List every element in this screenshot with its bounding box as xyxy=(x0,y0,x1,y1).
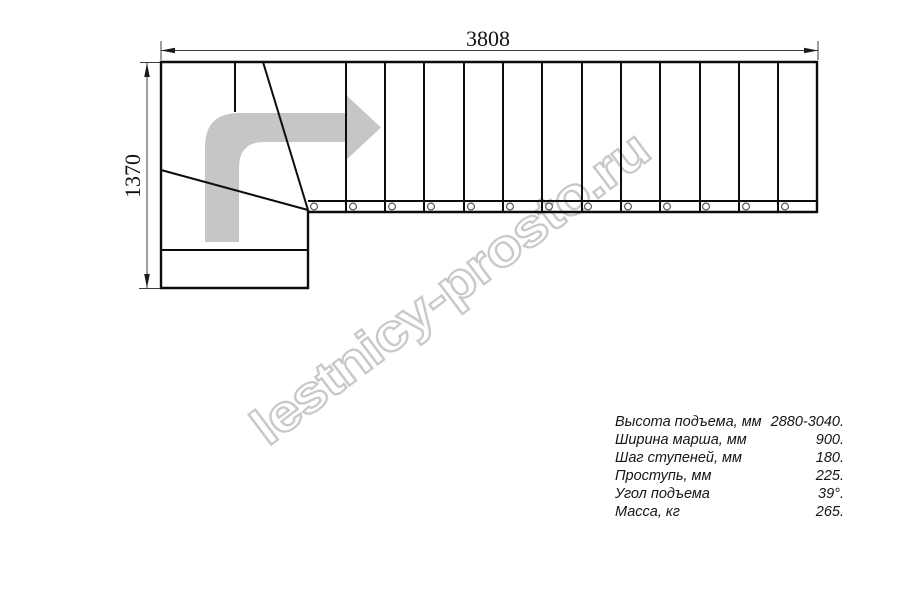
height-dimension-label: 1370 xyxy=(120,154,145,198)
baluster-circle xyxy=(743,203,750,210)
spec-value: 900. xyxy=(816,431,844,449)
spec-label: Масса, кг xyxy=(615,503,680,521)
dimension-height: 1370 xyxy=(120,63,160,289)
spec-value: 265. xyxy=(816,503,844,521)
spec-label: Ширина марша, мм xyxy=(615,431,747,449)
spec-value: 2880-3040. xyxy=(771,413,844,431)
spec-row-width: Ширина марша, мм 900. xyxy=(615,431,844,449)
baluster-circle xyxy=(311,203,318,210)
blueprint-canvas: lestnicy-prosto.ru xyxy=(0,0,900,600)
baluster-circles xyxy=(311,203,789,210)
dimension-arrow-left xyxy=(161,48,175,54)
spec-label: Проступь, мм xyxy=(615,467,711,485)
spec-row-step: Шаг ступеней, мм 180. xyxy=(615,449,844,467)
dimension-width: 3808 xyxy=(161,26,818,60)
spec-row-tread: Проступь, мм 225. xyxy=(615,467,844,485)
dimension-arrow-right xyxy=(804,48,818,54)
spec-value: 225. xyxy=(816,467,844,485)
baluster-circle xyxy=(585,203,592,210)
baluster-circle xyxy=(428,203,435,210)
spec-label: Шаг ступеней, мм xyxy=(615,449,742,467)
spec-label: Угол подъема xyxy=(615,485,710,503)
spec-row-height: Высота подъема, мм 2880-3040. xyxy=(615,413,844,431)
dimension-arrow-top xyxy=(144,63,150,77)
spec-value: 180. xyxy=(816,449,844,467)
baluster-circle xyxy=(664,203,671,210)
spec-label: Высота подъема, мм xyxy=(615,413,762,431)
baluster-circle xyxy=(782,203,789,210)
baluster-circle xyxy=(546,203,553,210)
specs-table: Высота подъема, мм 2880-3040. Ширина мар… xyxy=(615,413,844,521)
spec-value: 39°. xyxy=(818,485,844,503)
baluster-circle xyxy=(625,203,632,210)
spec-row-angle: Угол подъема 39°. xyxy=(615,485,844,503)
baluster-circle xyxy=(468,203,475,210)
baluster-circle xyxy=(507,203,514,210)
dimension-arrow-bottom xyxy=(144,274,150,288)
direction-arrow xyxy=(205,94,381,242)
baluster-circle xyxy=(389,203,396,210)
baluster-circle xyxy=(350,203,357,210)
baluster-circle xyxy=(703,203,710,210)
spec-row-mass: Масса, кг 265. xyxy=(615,503,844,521)
width-dimension-label: 3808 xyxy=(466,26,510,51)
